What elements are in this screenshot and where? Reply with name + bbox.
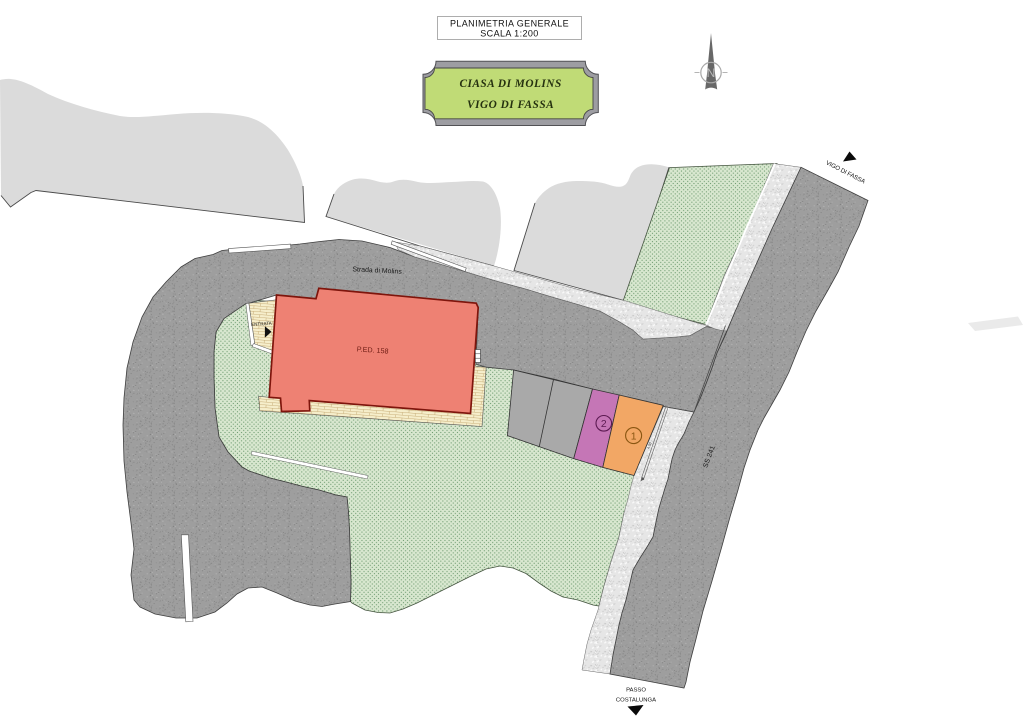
svg-text:VIGO DI FASSA: VIGO DI FASSA (467, 99, 554, 111)
svg-text:PASSO: PASSO (626, 688, 646, 694)
svg-text:COSTALUNGA: COSTALUNGA (616, 698, 656, 704)
svg-text:CIASA DI MOLINS: CIASA DI MOLINS (459, 78, 561, 90)
svg-text:1: 1 (631, 432, 637, 443)
svg-text:PLANIMETRIA GENERALE: PLANIMETRIA GENERALE (450, 18, 569, 28)
svg-text:2: 2 (601, 419, 607, 430)
svg-text:SCALA 1:200: SCALA 1:200 (480, 29, 538, 39)
svg-text:N: N (707, 66, 716, 80)
